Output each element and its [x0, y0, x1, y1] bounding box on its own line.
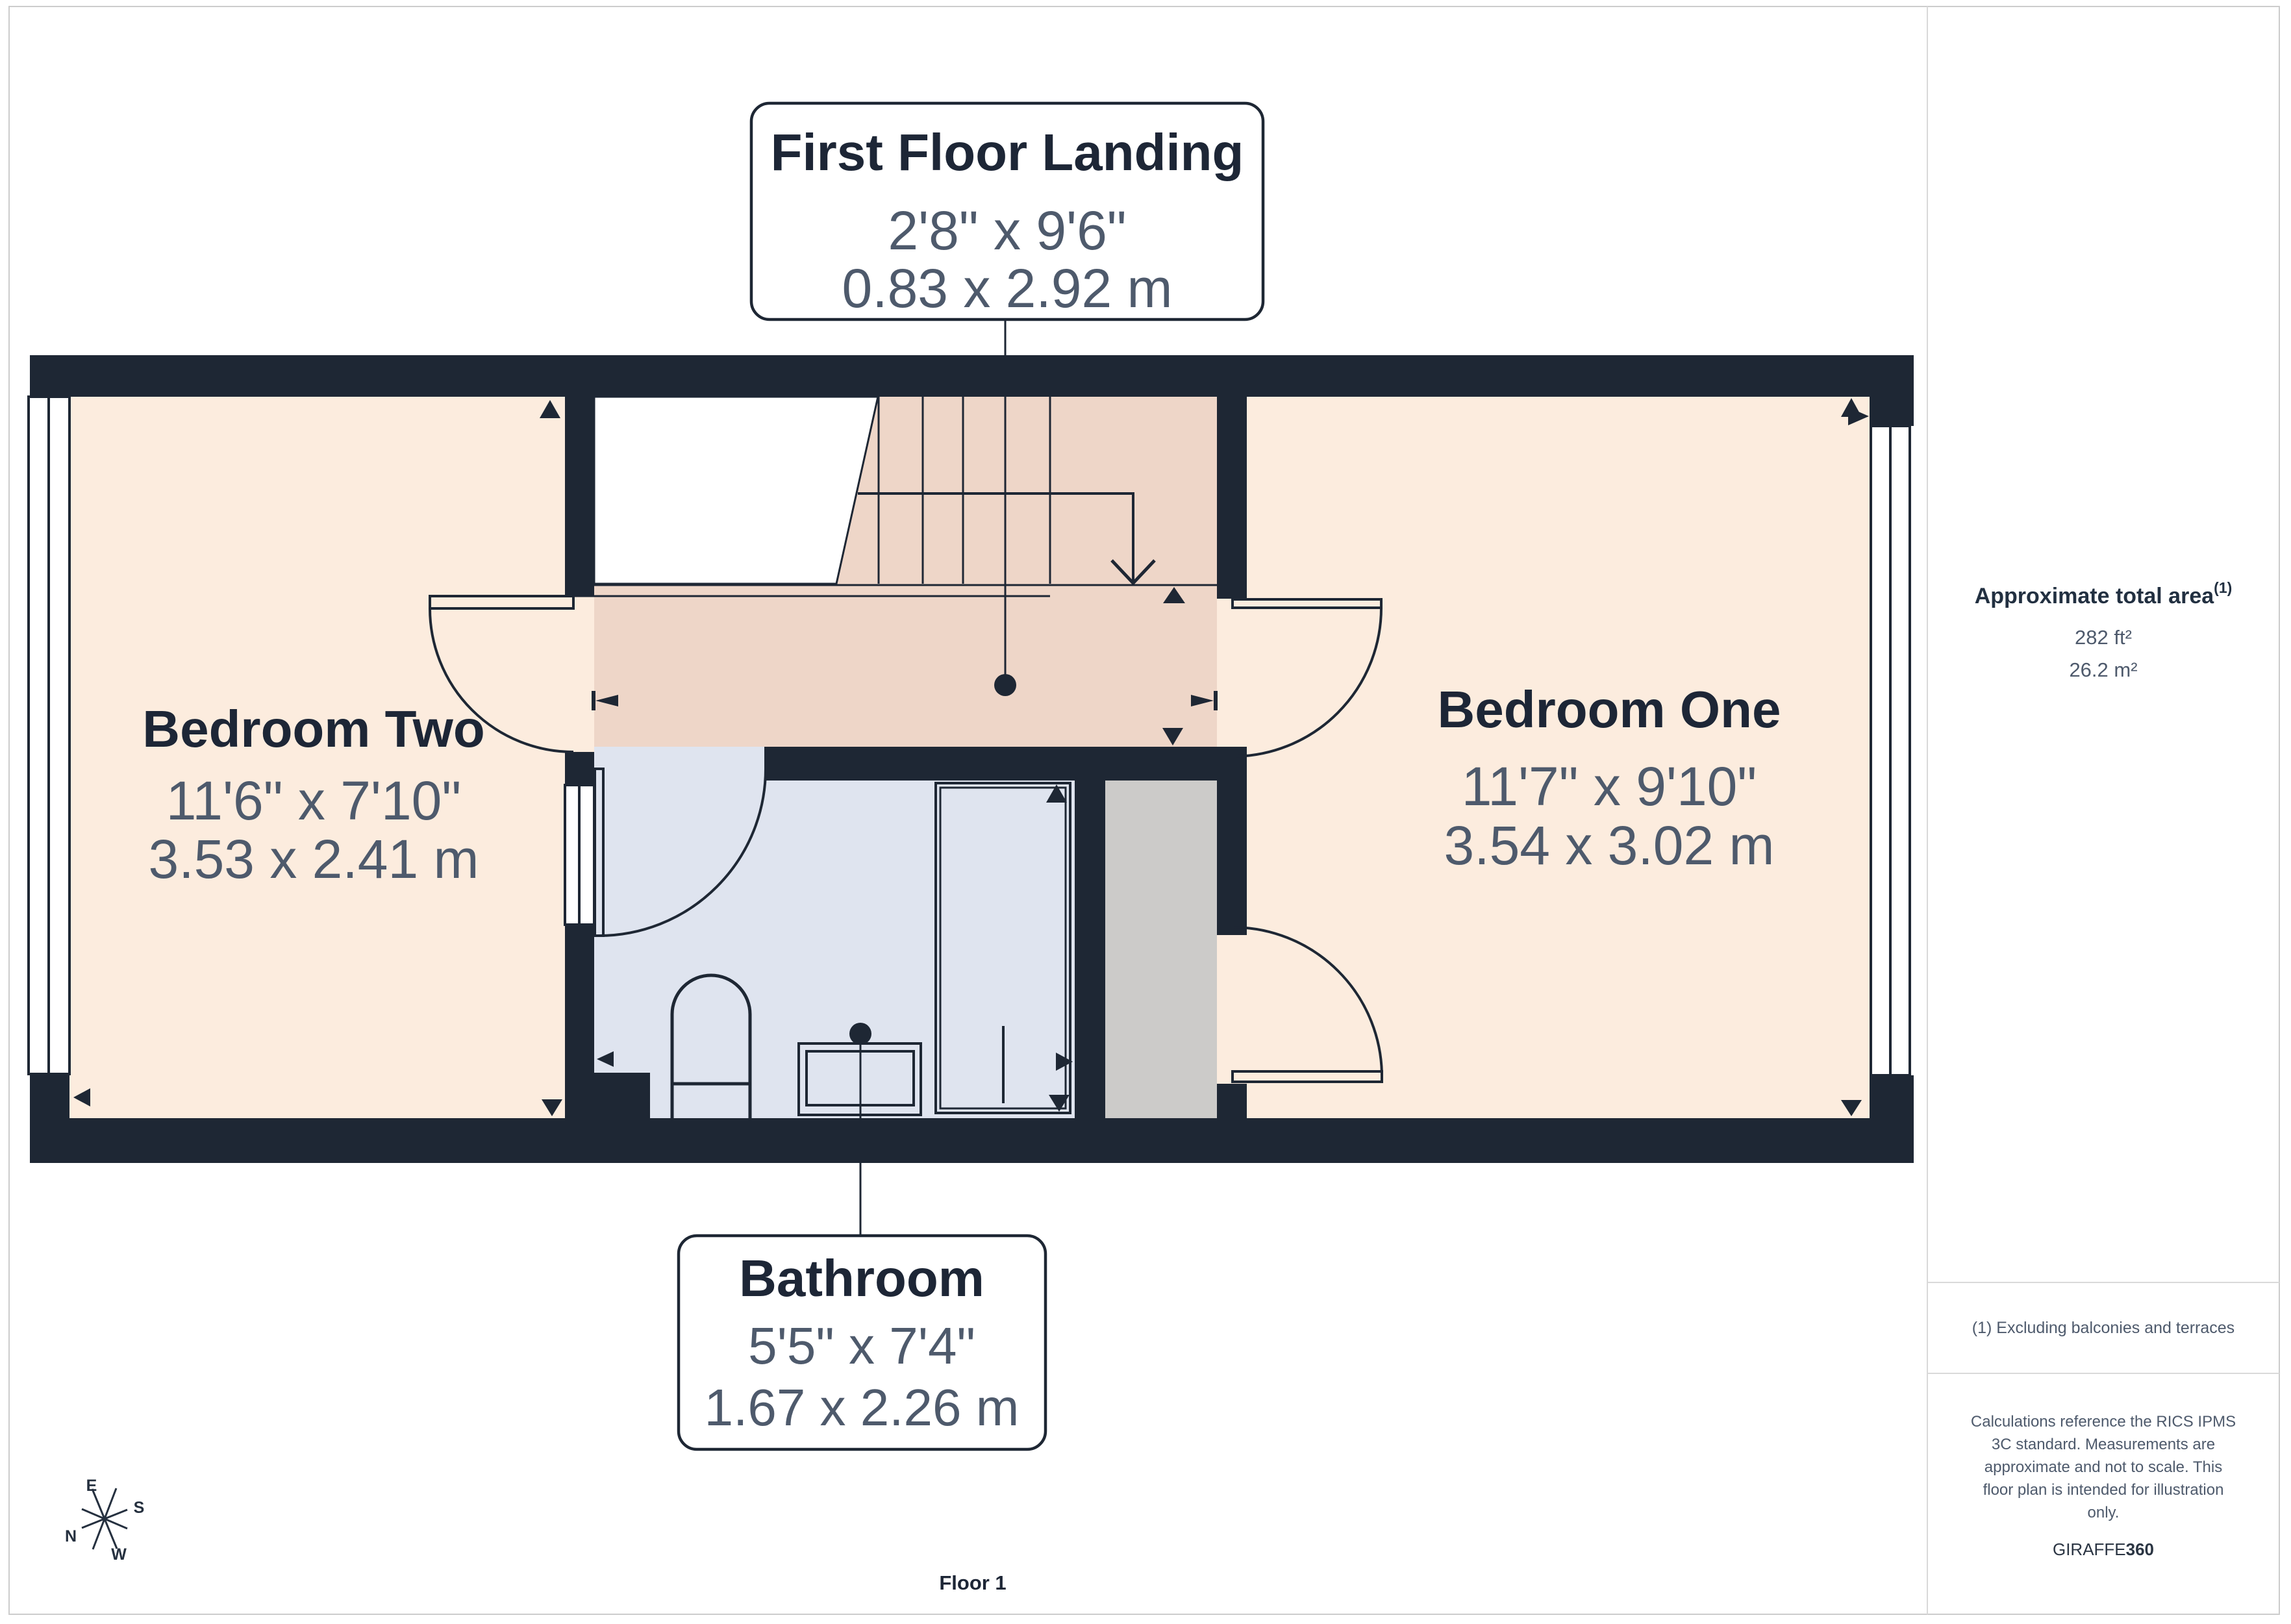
svg-text:approximate and not to scale.: approximate and not to scale. This	[1984, 1458, 2222, 1476]
svg-text:Bedroom One: Bedroom One	[1438, 681, 1781, 738]
svg-text:Calculations reference the RIC: Calculations reference the RICS IPMS	[1971, 1413, 2236, 1430]
svg-text:Approximate total area(1): Approximate total area(1)	[1975, 579, 2233, 608]
svg-text:11'7" x 9'10": 11'7" x 9'10"	[1462, 756, 1757, 817]
svg-text:Floor 1: Floor 1	[939, 1571, 1006, 1594]
svg-text:3.53 x 2.41 m: 3.53 x 2.41 m	[149, 829, 479, 890]
svg-text:11'6" x 7'10": 11'6" x 7'10"	[166, 770, 461, 831]
svg-text:W: W	[111, 1545, 127, 1564]
svg-text:Bathroom: Bathroom	[739, 1249, 984, 1307]
svg-text:3.54 x 3.02 m: 3.54 x 3.02 m	[1444, 815, 1775, 876]
svg-text:GIRAFFE360: GIRAFFE360	[2053, 1540, 2154, 1559]
svg-text:282 ft²: 282 ft²	[2075, 626, 2132, 649]
svg-text:First Floor Landing: First Floor Landing	[771, 123, 1244, 181]
svg-text:5'5" x 7'4": 5'5" x 7'4"	[748, 1317, 975, 1375]
svg-text:2'8" x 9'6": 2'8" x 9'6"	[888, 200, 1126, 261]
svg-text:floor plan is intended for ill: floor plan is intended for illustration	[1983, 1481, 2224, 1499]
svg-text:26.2 m²: 26.2 m²	[2069, 658, 2137, 681]
svg-text:S: S	[134, 1499, 145, 1517]
svg-text:1.67 x 2.26 m: 1.67 x 2.26 m	[705, 1379, 1020, 1436]
svg-text:(1) Excluding balconies and te: (1) Excluding balconies and terraces	[1972, 1319, 2235, 1337]
svg-text:3C standard. Measurements are: 3C standard. Measurements are	[1992, 1436, 2215, 1453]
svg-text:N: N	[65, 1527, 77, 1545]
svg-text:only.: only.	[2088, 1504, 2120, 1521]
svg-text:E: E	[86, 1477, 97, 1495]
svg-text:Bedroom Two: Bedroom Two	[142, 700, 484, 758]
svg-text:0.83 x 2.92 m: 0.83 x 2.92 m	[842, 258, 1173, 319]
